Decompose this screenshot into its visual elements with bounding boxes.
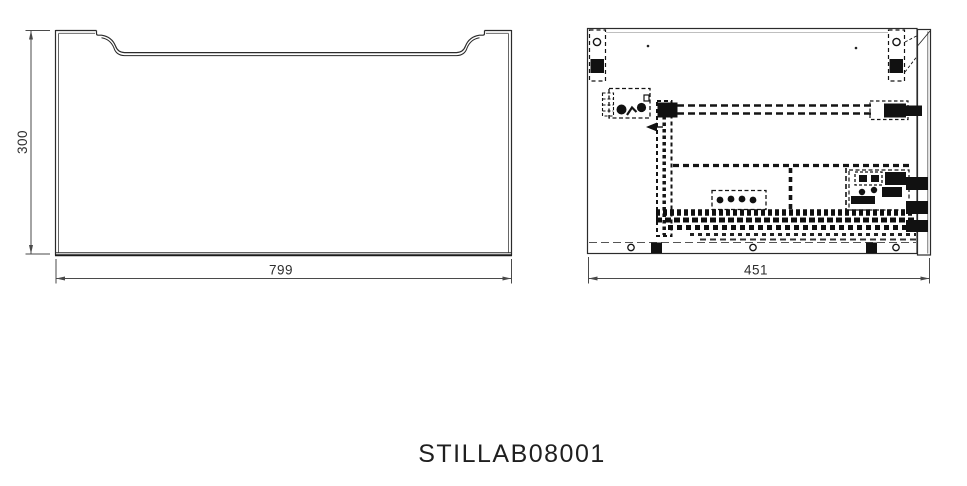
drawing-sheet: 300 799 [0,0,967,486]
side-panel-tabs [906,177,928,232]
side-upper-rail [677,101,922,120]
front-height-dimension: 300 [15,31,50,255]
front-height-label: 300 [15,130,30,154]
front-width-label: 799 [269,263,293,278]
technical-drawing: 300 799 [0,0,967,486]
front-view [55,30,512,256]
side-bearing-block [712,191,766,210]
side-slide-mechanism [656,213,916,240]
side-depth-dimension: 451 [589,257,930,284]
screw-mark-right [855,47,858,50]
side-adjuster-bracket [603,89,651,119]
drawing-title: STILLAB08001 [418,440,606,468]
side-bottom-fittings [589,243,916,254]
front-width-dimension: 799 [56,259,512,284]
side-depth-label: 451 [744,263,768,278]
side-corner-fitting-right [889,30,917,81]
screw-mark-left [647,45,650,48]
side-corner-fitting-left [590,30,606,81]
handle-groove-outer [97,31,485,53]
side-lock-device [849,170,909,210]
side-view [588,29,931,256]
